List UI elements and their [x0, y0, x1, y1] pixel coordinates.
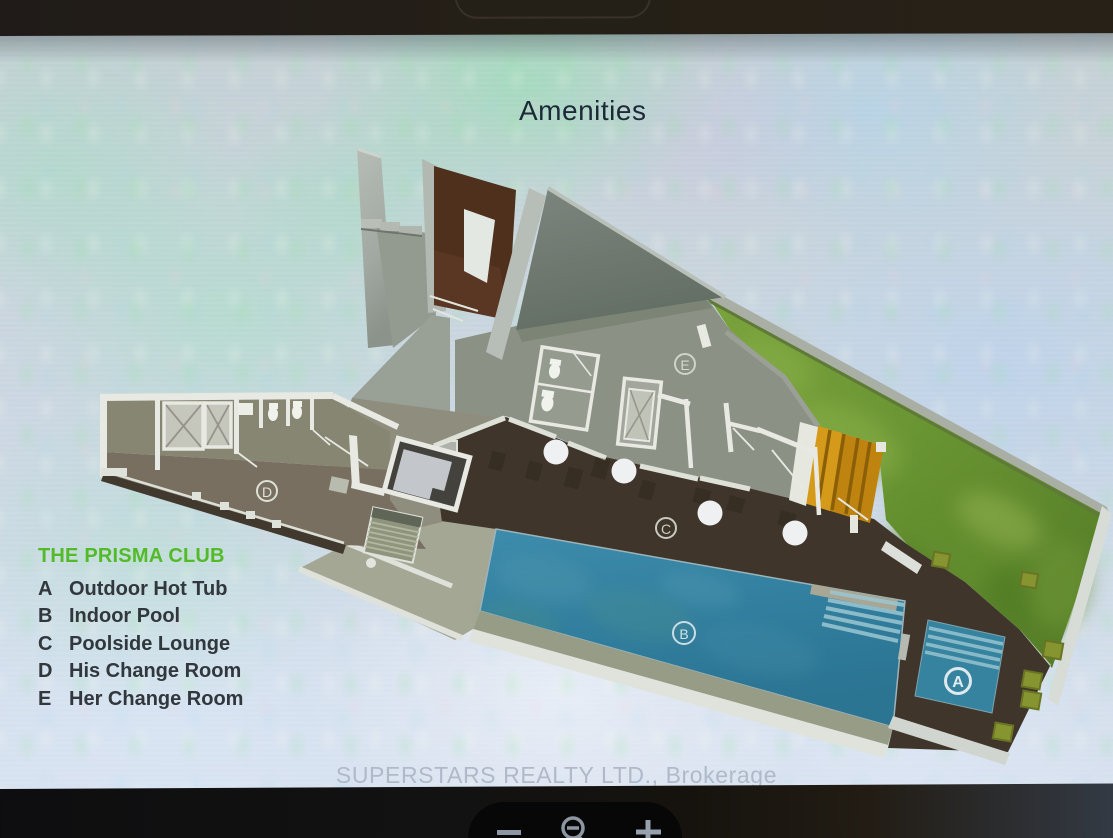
- svg-text:E: E: [680, 357, 689, 373]
- svg-text:C: C: [661, 521, 671, 537]
- svg-text:D: D: [262, 484, 272, 500]
- svg-text:A: A: [952, 674, 964, 691]
- svg-text:B: B: [679, 626, 688, 642]
